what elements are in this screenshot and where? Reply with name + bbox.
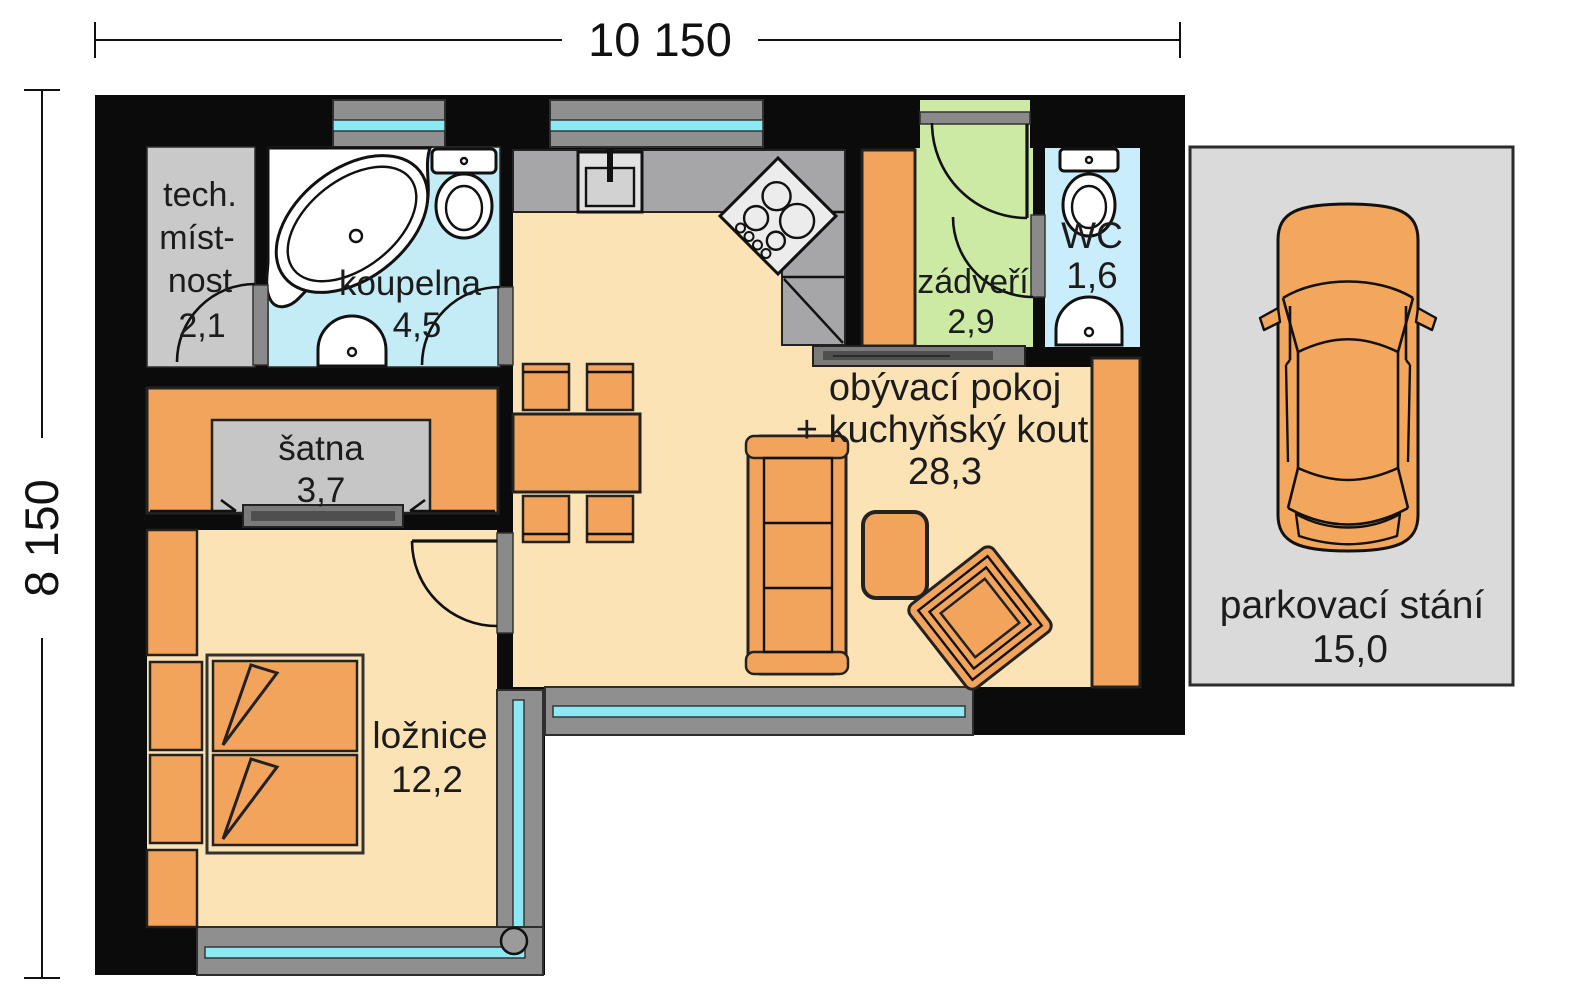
chair: [587, 364, 633, 410]
coffee-table: [863, 512, 927, 598]
label-living-2: + kuchyňský kout: [796, 409, 1089, 451]
vestibule-cabinet: [862, 150, 915, 346]
sliding-door-vestibule: [813, 346, 1025, 366]
window-top-bathroom: [333, 100, 445, 147]
label-wardrobe-area: 3,7: [297, 471, 346, 510]
dimension-left-label: 8 150: [15, 479, 68, 597]
label-parking: parkovací stání: [1220, 584, 1485, 627]
label-vestibule-area: 2,9: [947, 303, 994, 341]
label-bedroom: ložnice: [372, 715, 487, 756]
chair: [523, 496, 569, 542]
window-living-south: [545, 687, 973, 735]
corner-post: [501, 928, 527, 954]
car-icon: [1260, 204, 1436, 551]
label-bathroom: koupelna: [339, 264, 482, 303]
dimension-left: 8 150: [15, 90, 68, 978]
mattress: [213, 661, 357, 751]
dining-table: [513, 414, 640, 492]
label-tech-3: nost: [168, 262, 233, 300]
label-living-1: obývací pokoj: [829, 367, 1061, 409]
floor-plan-page: 10 150 8 150: [0, 0, 1582, 990]
label-tech-area: 2,1: [178, 307, 225, 345]
label-wc: WC: [1061, 215, 1123, 256]
toilet-bathroom-icon: [432, 149, 496, 238]
chair: [587, 496, 633, 542]
living-cabinet: [1092, 358, 1140, 687]
dimension-top-label: 10 150: [588, 13, 732, 66]
nightstand: [150, 755, 202, 843]
label-tech-1: tech.: [163, 176, 237, 214]
label-parking-area: 15,0: [1312, 628, 1388, 671]
chair: [523, 364, 569, 410]
label-living-area: 28,3: [908, 451, 982, 493]
label-vestibule: zádveří: [917, 263, 1029, 301]
kitchen-sink-icon: [578, 148, 642, 212]
label-bedroom-area: 12,2: [391, 759, 463, 800]
label-wc-area: 1,6: [1066, 255, 1117, 296]
bed: [150, 655, 363, 853]
bedroom-wardrobe-strip: [147, 850, 197, 927]
dimension-top: 10 150: [95, 13, 1180, 66]
label-bathroom-area: 4,5: [393, 306, 442, 345]
mattress: [213, 755, 357, 845]
label-tech-2: míst-: [159, 219, 235, 257]
window-top-kitchen: [550, 100, 763, 147]
sofa: [746, 436, 848, 674]
bedroom-wardrobe-strip: [147, 530, 197, 655]
label-wardrobe: šatna: [278, 429, 364, 468]
nightstand: [150, 662, 202, 750]
